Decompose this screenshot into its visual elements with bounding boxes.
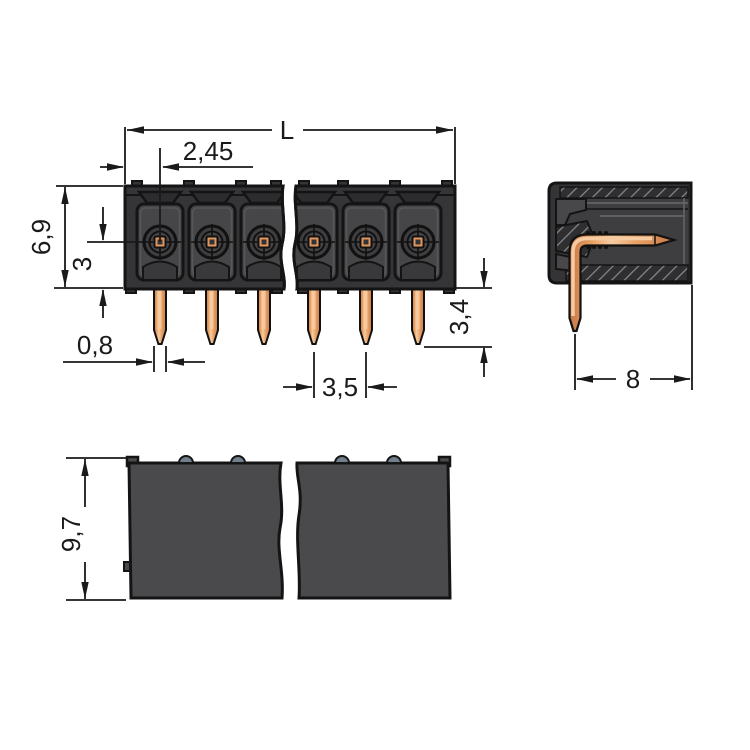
cell-5: [343, 192, 389, 280]
dim-label-2-45: 2,45: [183, 136, 234, 166]
arrowhead: [167, 358, 184, 365]
pin-bump: [387, 456, 401, 463]
dim-label-3: 3: [67, 257, 97, 271]
housing-left-half: [125, 186, 287, 289]
dim-pin-depth: 8: [575, 285, 692, 394]
arrowhead: [480, 271, 487, 288]
arrowhead: [127, 126, 144, 133]
dim-pin-width: 0,8: [63, 330, 205, 372]
pin-5: [360, 286, 372, 344]
cell-3: [241, 192, 287, 280]
dim-label-6-9: 6,9: [26, 219, 56, 255]
technical-drawing: L 2,45 6,9 3: [0, 0, 750, 750]
arrowhead: [296, 383, 313, 390]
arrowhead: [99, 224, 106, 241]
side-view: 8: [549, 183, 692, 394]
arrowhead: [436, 126, 453, 133]
dim-label-0-8: 0,8: [77, 330, 113, 360]
arrowhead: [136, 358, 153, 365]
cell-6: [395, 192, 441, 280]
pin-3: [258, 286, 270, 344]
dim-label-L: L: [280, 115, 294, 145]
dim-overall-length: L: [125, 115, 455, 184]
arrowhead: [162, 163, 179, 170]
pin-6: [412, 286, 424, 344]
side-hatch-top: [560, 187, 688, 198]
bottom-view: 9,7: [56, 456, 450, 600]
arrowhead: [576, 375, 593, 382]
side-hatch-bottom: [566, 265, 688, 281]
arrowhead: [61, 187, 68, 204]
pin-2: [206, 286, 218, 344]
arrowhead: [99, 289, 106, 306]
bottom-block-right: [297, 463, 450, 598]
cell-4: [291, 192, 337, 280]
dim-label-8: 8: [626, 364, 640, 394]
pin-bump: [179, 456, 193, 463]
arrowhead: [107, 163, 124, 170]
pin-4: [308, 286, 320, 344]
bottom-block-left: [129, 463, 282, 598]
pin-bump: [335, 456, 349, 463]
dim-label-9-7: 9,7: [56, 516, 86, 552]
arrowhead: [81, 459, 88, 476]
dim-housing-height: 6,9: [26, 186, 123, 288]
housing-right-half: [291, 186, 455, 289]
arrowhead: [61, 270, 68, 287]
dim-overall-depth: 9,7: [56, 458, 126, 600]
front-view: L 2,45 6,9 3: [26, 115, 492, 402]
front-solder-pins: [154, 286, 424, 344]
arrowhead: [367, 383, 384, 390]
dim-pin-pitch: 3,5: [283, 352, 397, 402]
arrowhead: [674, 375, 691, 382]
arrowhead: [81, 582, 88, 599]
dim-label-3-5: 3,5: [322, 372, 358, 402]
drawing-canvas: L 2,45 6,9 3: [0, 0, 750, 750]
pin-1: [154, 286, 166, 344]
cell-2: [189, 192, 235, 280]
dim-label-3-4: 3,4: [444, 299, 474, 335]
pin-bump: [231, 456, 245, 463]
arrowhead: [480, 346, 487, 363]
